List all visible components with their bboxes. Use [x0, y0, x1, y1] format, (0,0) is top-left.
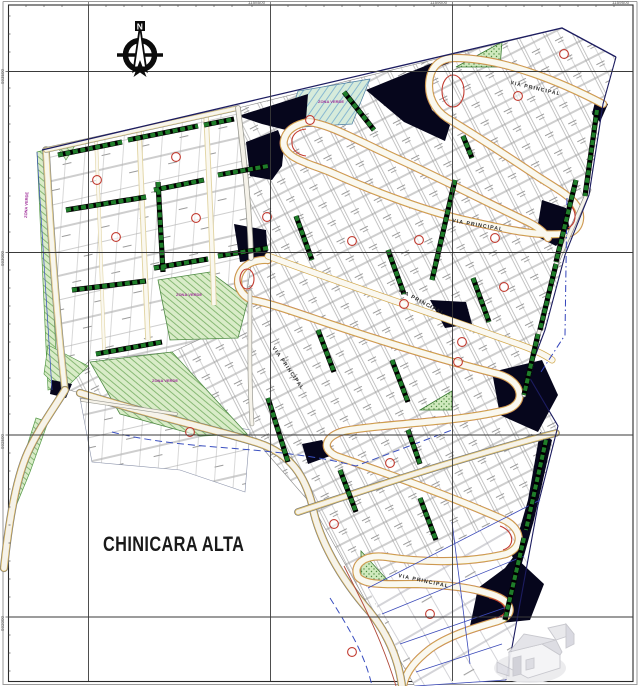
svg-text:992500: 992500: [0, 433, 5, 449]
svg-text:1158500: 1158500: [248, 0, 266, 5]
svg-text:993000: 993000: [0, 250, 5, 266]
svg-text:ZONA VERDE: ZONA VERDE: [318, 99, 344, 104]
svg-text:1159000: 1159000: [430, 0, 448, 5]
svg-text:CHINICARA ALTA: CHINICARA ALTA: [103, 533, 244, 557]
svg-text:993500: 993500: [0, 68, 5, 84]
svg-text:ZONA VERDE: ZONA VERDE: [176, 292, 202, 297]
svg-text:ZONA VERDE: ZONA VERDE: [152, 378, 178, 383]
svg-text:1159500: 1159500: [612, 0, 630, 5]
svg-text:N: N: [137, 22, 143, 32]
svg-text:992000: 992000: [0, 615, 5, 631]
